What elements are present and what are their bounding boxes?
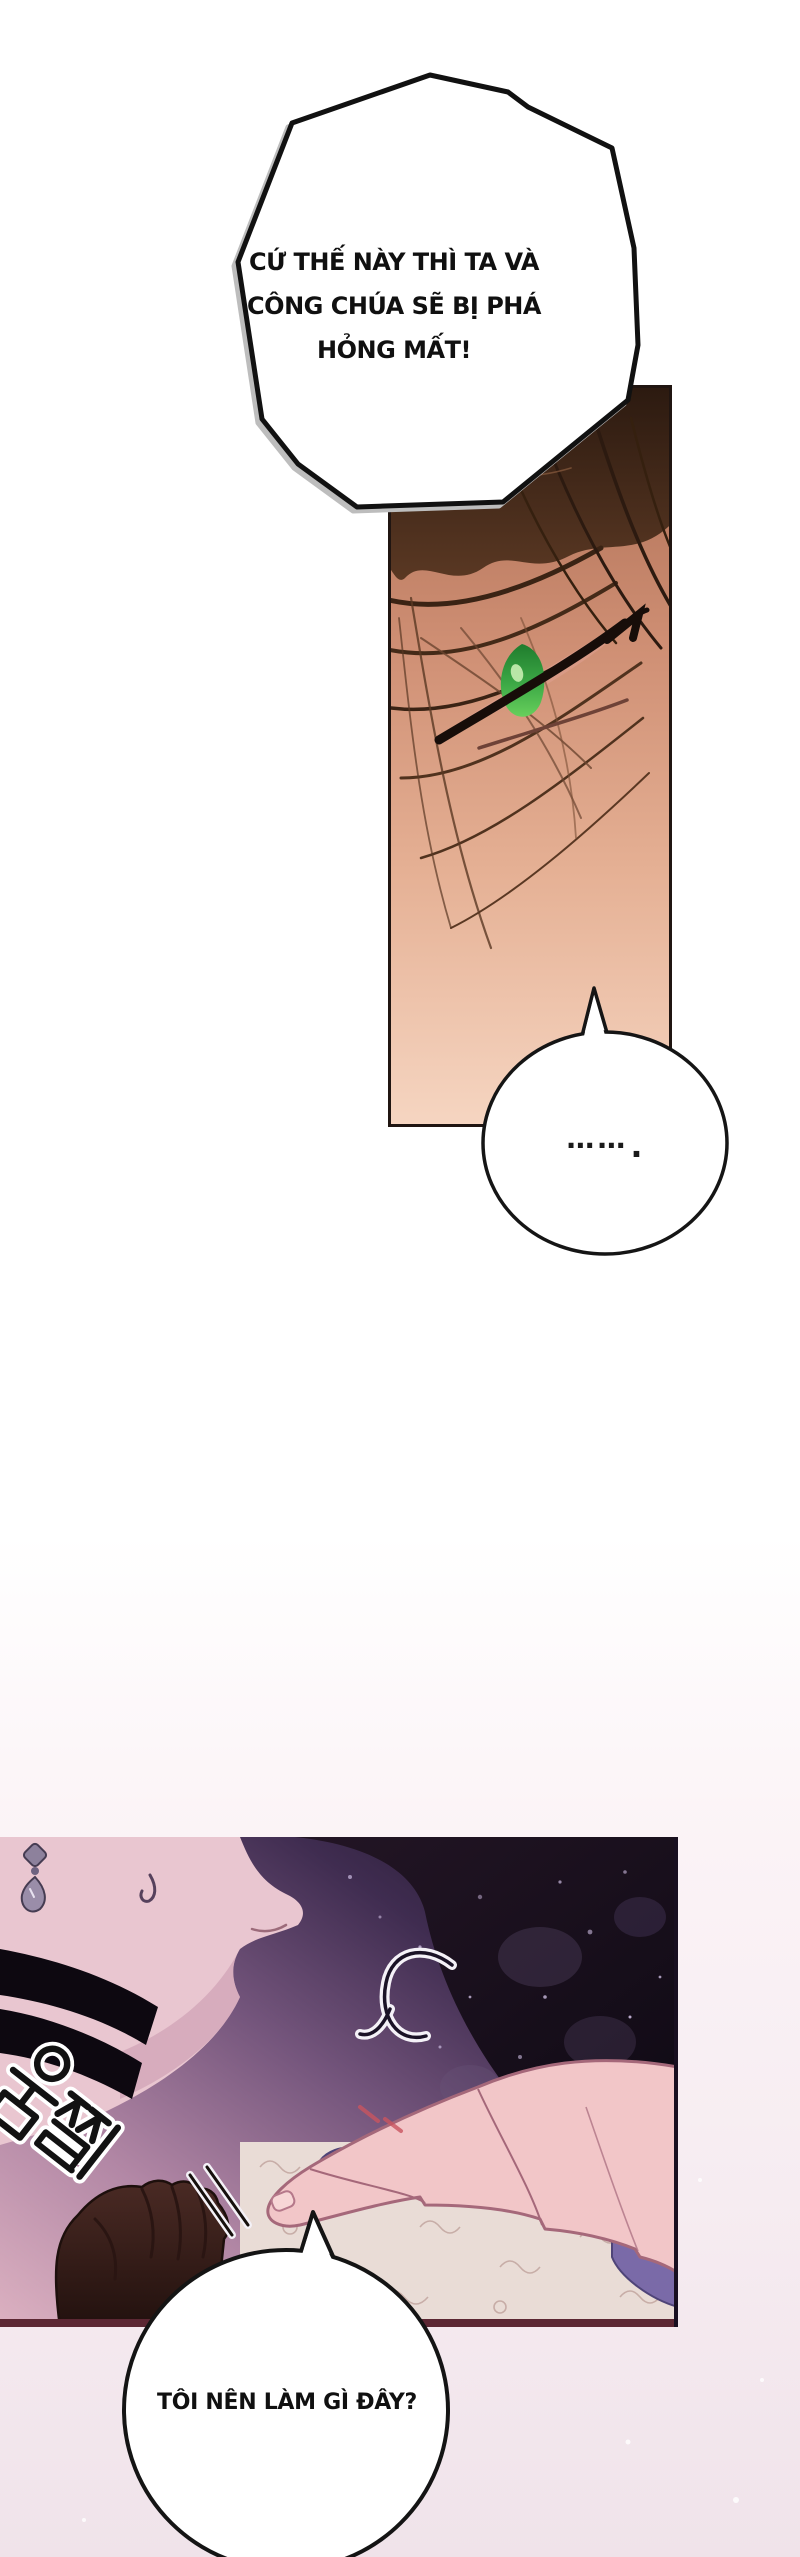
comic-page: 움찔 ……. CỨ THẾ NÀY THÌ TA VÀ CÔNG CHÚA SẼ… [0,0,800,2557]
background-sparkles [0,0,800,2557]
